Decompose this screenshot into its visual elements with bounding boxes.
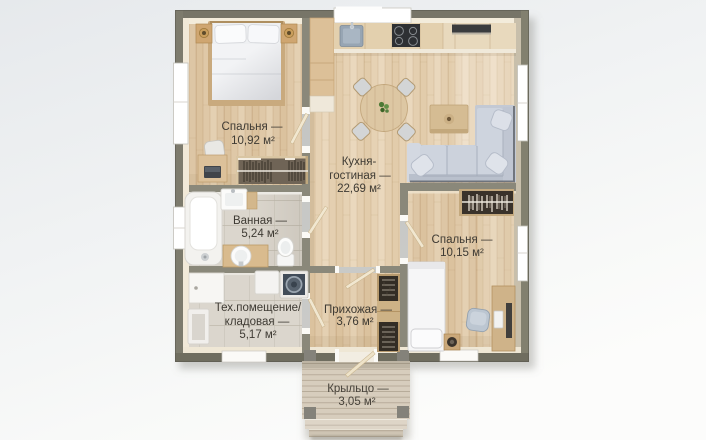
svg-text:Кухня-: Кухня- — [342, 156, 377, 168]
svg-text:кладовая —: кладовая — — [225, 316, 290, 328]
svg-text:10,15 м²: 10,15 м² — [440, 247, 484, 259]
svg-text:3,76 м²: 3,76 м² — [336, 316, 373, 328]
svg-text:Прихожая —: Прихожая — — [324, 304, 392, 316]
svg-text:10,92 м²: 10,92 м² — [231, 135, 275, 147]
svg-text:Крыльцо —: Крыльцо — — [327, 383, 389, 395]
svg-text:3,05 м²: 3,05 м² — [338, 396, 375, 408]
svg-text:Ванная —: Ванная — — [233, 215, 288, 227]
svg-text:5,17 м²: 5,17 м² — [239, 329, 276, 341]
svg-text:гостиная —: гостиная — — [329, 170, 391, 182]
svg-text:Спальня —: Спальня — — [432, 234, 493, 246]
svg-text:22,69 м²: 22,69 м² — [337, 183, 381, 195]
svg-text:5,24 м²: 5,24 м² — [241, 228, 278, 240]
svg-text:Тех.помещение/: Тех.помещение/ — [215, 302, 302, 314]
svg-text:Спальня —: Спальня — — [222, 121, 283, 133]
